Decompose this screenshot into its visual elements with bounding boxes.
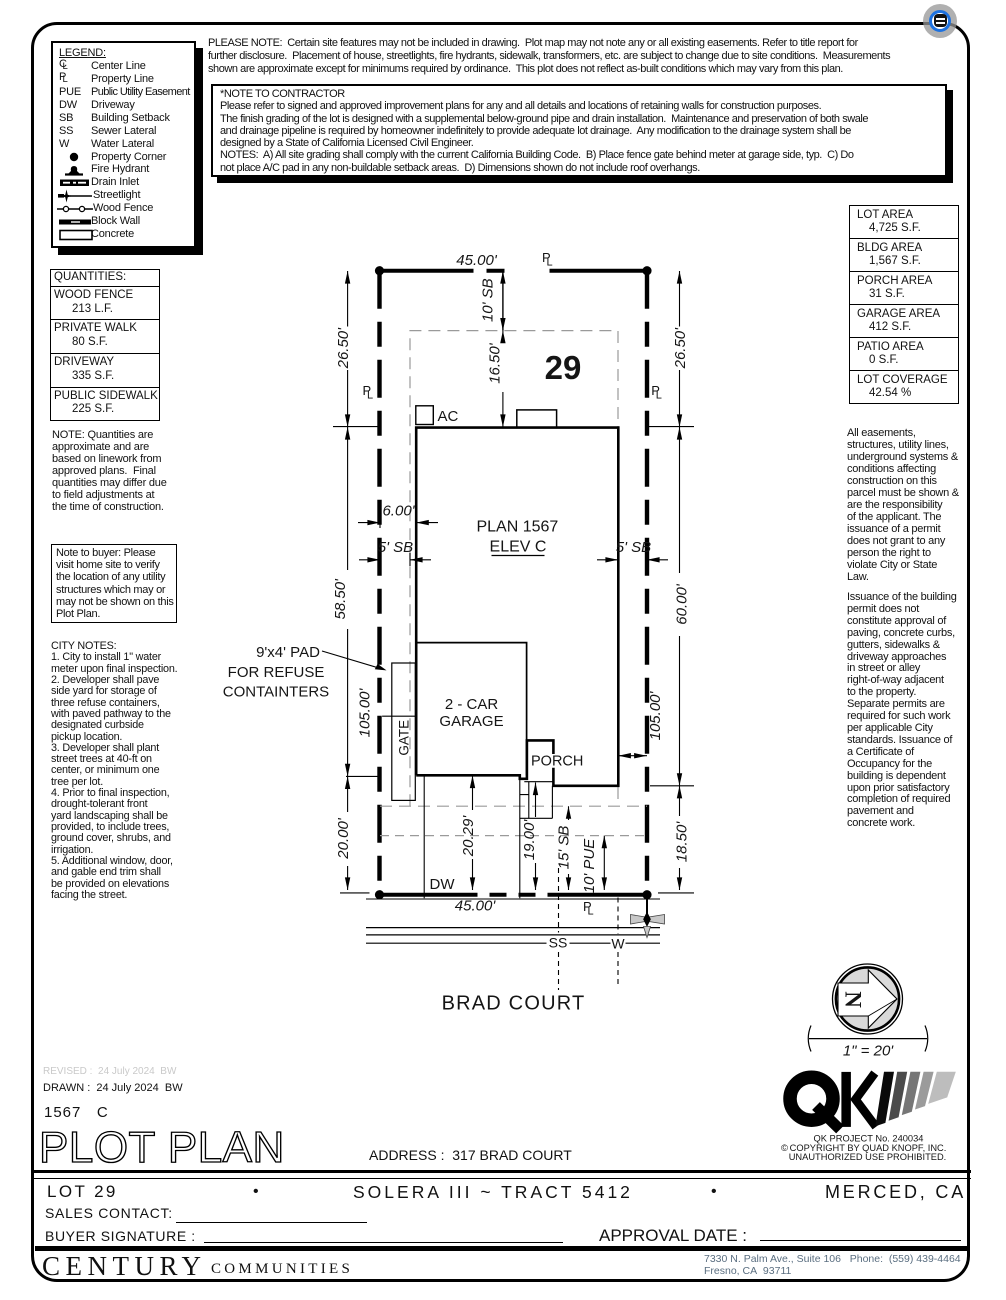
svg-text:CONTAINTERS: CONTAINTERS	[223, 684, 329, 701]
svg-text:ELEV C: ELEV C	[490, 539, 547, 556]
svg-text:16.50': 16.50'	[487, 342, 504, 384]
svg-text:1" = 20': 1" = 20'	[843, 1043, 894, 1060]
svg-text:L: L	[367, 390, 373, 402]
svg-text:15' SB: 15' SB	[556, 826, 573, 870]
svg-text:105.00': 105.00'	[356, 687, 373, 737]
svg-text:18.50': 18.50'	[673, 821, 690, 863]
svg-text:58.50': 58.50'	[332, 578, 349, 620]
svg-text:L: L	[547, 257, 553, 269]
svg-text:10' SB: 10' SB	[479, 278, 496, 322]
svg-text:DW: DW	[430, 876, 456, 893]
svg-text:26.50': 26.50'	[672, 327, 689, 370]
svg-text:26.50': 26.50'	[335, 327, 352, 370]
svg-text:PORCH: PORCH	[531, 754, 583, 770]
svg-text:GATE: GATE	[397, 720, 412, 756]
svg-text:20.00': 20.00'	[335, 817, 352, 860]
svg-text:105.00': 105.00'	[647, 690, 664, 740]
svg-text:BRAD COURT: BRAD COURT	[442, 993, 586, 1015]
svg-text:N: N	[841, 991, 866, 1008]
svg-text:GARAGE: GARAGE	[439, 713, 503, 730]
svg-text:60.00': 60.00'	[673, 583, 690, 625]
svg-text:29: 29	[545, 349, 582, 386]
svg-text:45.00': 45.00'	[456, 252, 498, 269]
svg-text:PLAN 1567: PLAN 1567	[476, 519, 558, 536]
svg-text:©: ©	[781, 1143, 788, 1154]
svg-text:5' SB: 5' SB	[378, 539, 413, 556]
svg-text:UNAUTHORIZED USE PROHIBITED.: UNAUTHORIZED USE PROHIBITED.	[789, 1152, 947, 1162]
svg-text:SS: SS	[549, 935, 568, 951]
svg-text:45.00': 45.00'	[455, 898, 497, 915]
svg-text:2 - CAR: 2 - CAR	[445, 696, 499, 713]
svg-text:AC: AC	[438, 408, 459, 425]
svg-text:6.00': 6.00'	[382, 502, 415, 519]
svg-text:QK PROJECT No. 240034: QK PROJECT No. 240034	[814, 1134, 924, 1144]
svg-text:9'x4' PAD: 9'x4' PAD	[256, 644, 320, 661]
svg-text:FOR REFUSE: FOR REFUSE	[228, 664, 325, 681]
svg-text:L: L	[588, 906, 594, 918]
svg-text:L: L	[656, 390, 662, 402]
svg-text:19.00': 19.00'	[521, 819, 538, 861]
svg-text:5' SB: 5' SB	[616, 539, 651, 556]
svg-text:10' PUE: 10' PUE	[581, 838, 598, 894]
svg-text:W: W	[611, 936, 625, 952]
svg-text:20.29': 20.29'	[460, 815, 477, 858]
